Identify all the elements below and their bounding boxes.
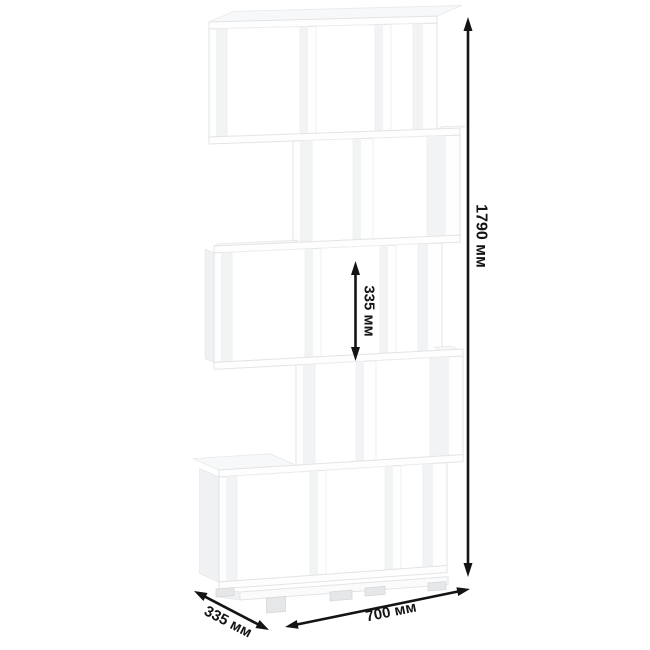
arrow-right-icon bbox=[456, 587, 470, 596]
arrow-left-icon bbox=[285, 620, 299, 629]
shelf-illustration bbox=[193, 6, 466, 614]
height-dimension-label: 1790 мм bbox=[473, 204, 490, 268]
arrow-up-icon bbox=[464, 17, 473, 31]
shelf-dimension-drawing: 1790 мм 335 мм 335 мм 700 мм bbox=[0, 0, 650, 650]
spacing-dimension-label: 335 мм bbox=[361, 285, 378, 336]
arrow-downright-icon bbox=[255, 620, 269, 630]
width-dimension-label: 700 мм bbox=[364, 599, 418, 626]
height-dimension: 1790 мм bbox=[464, 17, 490, 577]
arrow-upleft-icon bbox=[194, 591, 208, 601]
arrow-down-icon bbox=[464, 563, 473, 577]
dimension-diagram: 1790 мм 335 мм 335 мм 700 мм bbox=[0, 0, 650, 650]
